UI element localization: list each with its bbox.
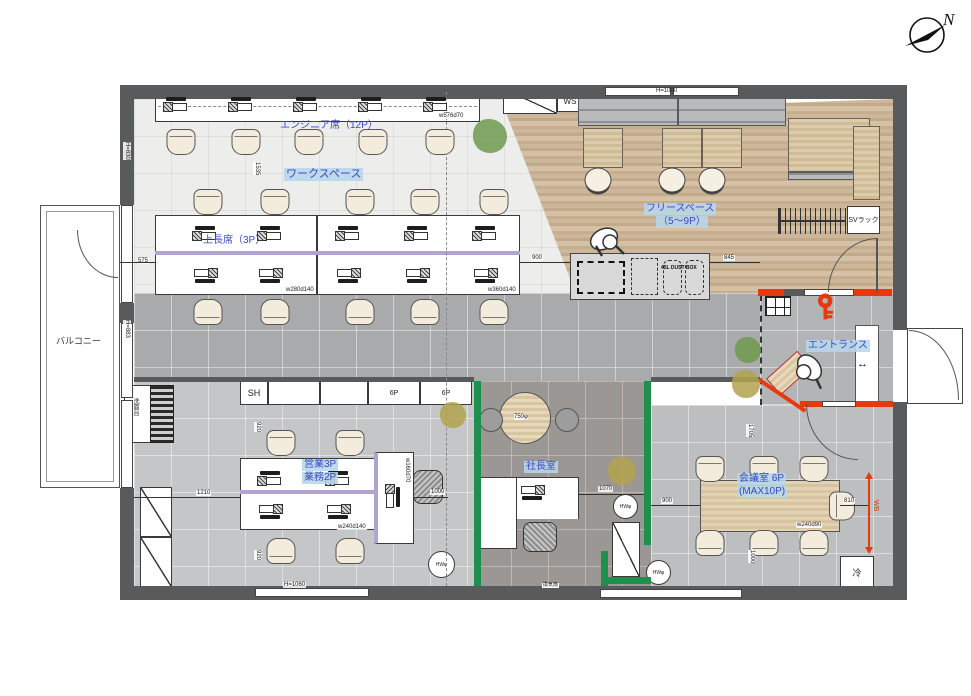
stool [585, 168, 612, 193]
workstation-icon [385, 484, 401, 510]
office-chair [359, 129, 388, 155]
plant [473, 119, 507, 153]
workstation-icon [257, 504, 283, 520]
dim-1070: 1070 [598, 486, 613, 492]
dim-810: 810 [843, 498, 855, 504]
label-president-room: 社長室 [524, 461, 558, 473]
office-chair [336, 430, 365, 456]
dimline-1000-sales [414, 497, 448, 498]
office-chair [346, 189, 375, 215]
workstation-icon [519, 485, 545, 501]
label-engineer-seats: エンジニア席（12P） [280, 120, 378, 132]
person-figure-kitchen [586, 224, 630, 260]
dim-w160d70: w160d70 [403, 458, 411, 482]
workstation-icon [228, 96, 254, 112]
workstation-icon [257, 470, 283, 486]
executive-chair [413, 470, 443, 504]
office-chair [800, 530, 829, 556]
dim-h830: H=830 [123, 142, 131, 160]
stool [699, 168, 726, 193]
dim-island-left: w280d140 [285, 287, 315, 293]
dim-900-kitchen: 900 [531, 255, 543, 261]
label-free-space-1: フリースペース [644, 203, 716, 215]
dimline-810 [840, 505, 868, 506]
workstation-icon [335, 225, 361, 241]
office-chair [261, 189, 290, 215]
office-chair [267, 430, 296, 456]
dim-920-top: 920 [254, 422, 262, 432]
stool [659, 168, 686, 193]
office-chair [829, 492, 855, 521]
office-chair [267, 538, 296, 564]
workstation-icon [293, 96, 319, 112]
workstation-icon [472, 268, 498, 284]
label-round-table-dia: 750φ [514, 414, 528, 420]
label-entrance: エントランス [806, 340, 870, 352]
label-meeting-room-2: (MAX10P) [737, 486, 787, 498]
label-workspace: ワークスペース [284, 168, 363, 181]
north-arrow: N [898, 5, 962, 61]
plant [735, 337, 761, 363]
dim-900-meeting: 900 [661, 498, 673, 504]
workstation-icon [404, 225, 430, 241]
label-free-space-2: （5〜9P） [656, 216, 708, 228]
label-balcony: バルコニー [56, 334, 101, 347]
workstation-icon [335, 268, 361, 284]
dimline-1210 [134, 497, 240, 498]
office-chair [411, 299, 440, 325]
dim-845: 845 [723, 255, 735, 261]
label-meeting-room-1: 会議室 6P [737, 473, 786, 485]
plant [732, 370, 760, 398]
plant [440, 402, 466, 428]
office-chair [800, 456, 829, 482]
floor-plan: WS SVラック 45L DUST BOX SH 6P 6P 洗面台 冷 WB … [0, 0, 971, 696]
office-chair [167, 129, 196, 155]
office-chair [411, 189, 440, 215]
workstation-icon [423, 96, 449, 112]
label-vent-fan: 換気扇 [542, 583, 559, 588]
office-chair [480, 189, 509, 215]
office-chair [480, 299, 509, 325]
office-chair [696, 456, 725, 482]
office-chair [336, 538, 365, 564]
label-sales-1: 営業3P [302, 459, 338, 471]
dimline-900-kitchen [520, 262, 570, 263]
office-chair [232, 129, 261, 155]
office-chair [194, 299, 223, 325]
dimline-1070 [579, 494, 644, 495]
dimline-900-meeting [651, 505, 700, 506]
dim-h1060: H=1060 [283, 582, 306, 588]
dim-w240d90: w240d90 [796, 522, 822, 528]
dim-1000-meeting: 1000 [748, 550, 756, 563]
executive-chair [523, 522, 557, 552]
workstation-icon [163, 96, 189, 112]
dim-h883: H=883 [123, 320, 131, 338]
dim-h1000: H=1000 [655, 88, 678, 94]
north-arrow-n: N [942, 10, 956, 29]
label-senior-seats: 上長席（3P） [203, 235, 265, 247]
dim-1210: 1210 [196, 490, 211, 496]
office-chair [426, 129, 455, 155]
workstation-icon [358, 96, 384, 112]
office-chair [696, 530, 725, 556]
workstation-icon [257, 268, 283, 284]
dim-920-bottom: 920 [254, 550, 262, 560]
workstation-icon [325, 504, 351, 520]
office-chair [194, 189, 223, 215]
dim-1000-sales: 1000 [430, 489, 445, 495]
office-chair [295, 129, 324, 155]
dim-island-right: w360d140 [487, 287, 517, 293]
dimline-575 [120, 262, 156, 263]
dim-engineer-desk: w576d70 [438, 113, 464, 119]
dim-w240d140: w240d140 [337, 524, 367, 530]
office-chair [346, 299, 375, 325]
workstation-icon [472, 225, 498, 241]
plant [608, 457, 636, 485]
dim-1535: 1535 [253, 162, 261, 175]
dim-575: 575 [137, 258, 149, 264]
workstation-icon [404, 268, 430, 284]
label-sales-2: 業務2P [302, 472, 338, 484]
dimline-845 [710, 262, 760, 263]
office-chair [261, 299, 290, 325]
dim-1705: 1705 [746, 424, 754, 437]
workstation-icon [192, 268, 218, 284]
